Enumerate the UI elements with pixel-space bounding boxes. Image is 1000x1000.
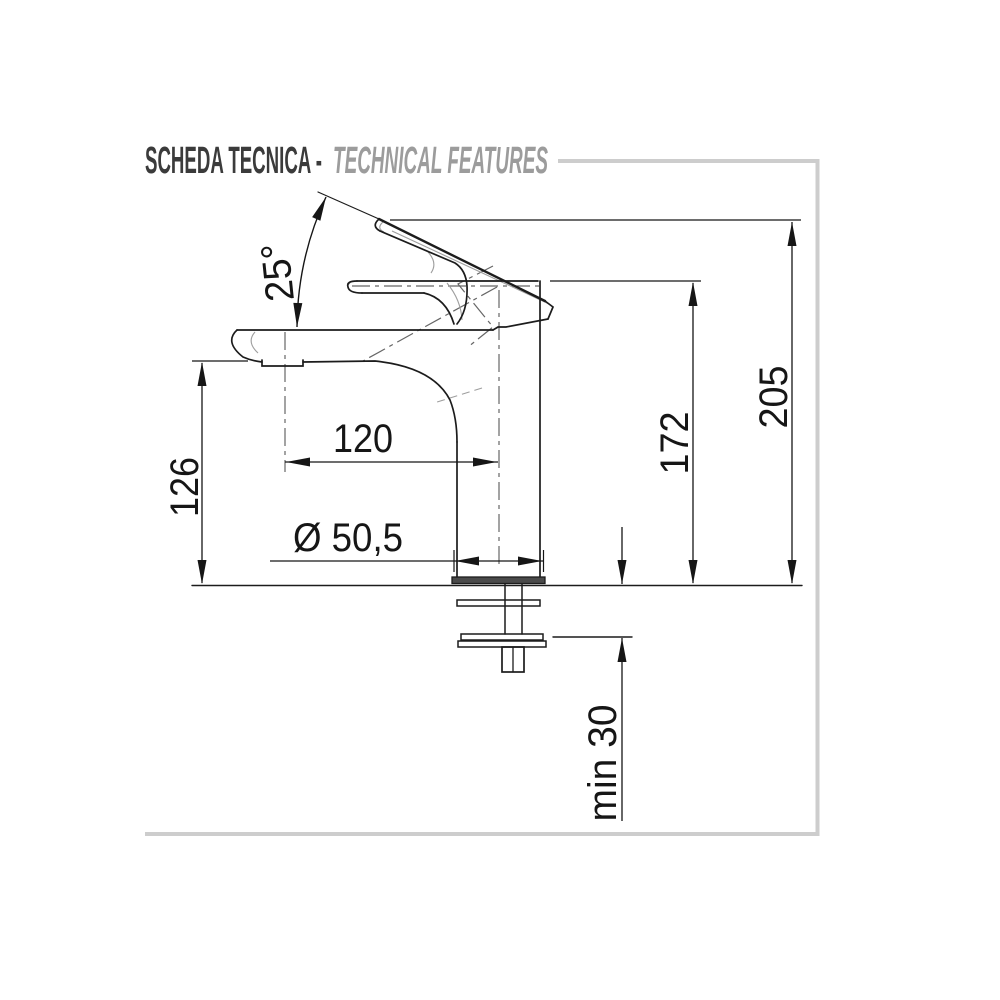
pivot-fan-line <box>458 266 493 347</box>
handle-raised-tip-cap <box>375 219 380 231</box>
dimension-spout-reach: 120 <box>285 417 498 467</box>
handle-mid-detail <box>428 252 434 273</box>
page-title: SCHEDA TECNICA - TECHNICAL FEATURES <box>145 140 548 182</box>
dim-arrow-120-right <box>473 458 497 467</box>
spout-front-face <box>232 330 262 362</box>
dim-arrow-172-bottom <box>689 560 698 584</box>
dim-arrow-126-top <box>198 362 207 386</box>
body-diagonal-detail <box>434 388 482 403</box>
clamp-plate-lower <box>458 641 546 647</box>
dim-arrow-120-left <box>286 458 310 467</box>
dim-arrow-126-bottom <box>198 560 207 584</box>
page-title-secondary: TECHNICAL FEATURES <box>333 140 548 182</box>
handle-extension-line <box>318 192 379 219</box>
dim-label-120: 120 <box>333 417 393 461</box>
dimension-handle-height: 172 <box>550 281 701 584</box>
dim-arrow-diameter-left <box>455 557 479 566</box>
dimension-counter-thickness: min 30 <box>581 527 627 822</box>
dim-label-126: 126 <box>163 457 207 517</box>
technical-drawing-svg: SCHEDA TECNICA - TECHNICAL FEATURES <box>0 0 1000 1000</box>
page-frame <box>145 161 818 834</box>
pivot-to-outlet-line <box>363 287 497 361</box>
dim-arrow-172-top <box>689 282 698 306</box>
dim-label-diameter: Ø 50,5 <box>293 516 403 560</box>
dim-arrow-205-bottom <box>788 560 797 584</box>
frame-border-line <box>145 161 818 834</box>
spout-tip-inner-line <box>251 332 258 353</box>
dim-arrow-205-top <box>788 222 797 246</box>
technical-sheet: SCHEDA TECNICA - TECHNICAL FEATURES <box>0 0 1000 1000</box>
angle-label: 25° <box>253 241 303 303</box>
neck-inner-line <box>447 283 462 320</box>
dim-label-205: 205 <box>752 366 796 429</box>
dim-arrow-diameter-right <box>518 557 542 566</box>
base-flange <box>452 577 545 584</box>
angle-arrow-bottom <box>293 303 303 327</box>
dim-label-172: 172 <box>653 412 697 475</box>
mounting-washer <box>457 600 540 606</box>
dim-arrow-min30-top <box>618 560 627 584</box>
dimension-outlet-height: 126 <box>163 361 248 584</box>
angle-arrow-top <box>312 195 330 221</box>
page-title-primary: SCHEDA TECNICA - <box>145 140 322 182</box>
dimension-handle-angle: 25° <box>253 195 330 327</box>
dim-arrow-min30-bottom <box>618 638 627 662</box>
clamp-plate-upper <box>461 634 543 640</box>
handle-raised-end-face <box>545 301 553 319</box>
dim-label-min30: min 30 <box>581 705 625 822</box>
dimension-base-diameter: Ø 50,5 <box>270 516 544 572</box>
header: SCHEDA TECNICA - TECHNICAL FEATURES <box>145 140 548 182</box>
threaded-rod <box>505 584 522 634</box>
aerator-outlet <box>262 360 303 366</box>
handle-lowered-tip-cap <box>348 281 362 293</box>
